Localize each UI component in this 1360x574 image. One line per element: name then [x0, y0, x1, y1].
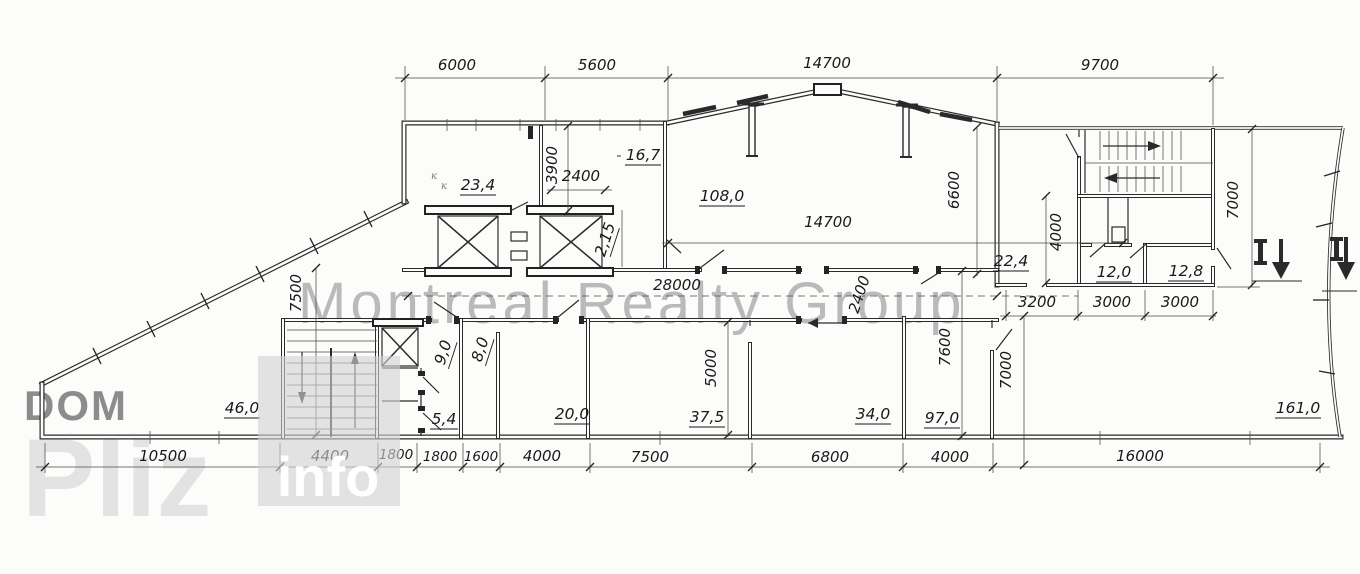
room-area-20-0: 20,0	[554, 405, 590, 424]
dim-text: 9700	[1081, 56, 1119, 74]
dim-bottom-9: 16000	[1116, 447, 1164, 465]
roof-peak-cap	[814, 84, 841, 95]
area-text: 108,0	[700, 187, 745, 205]
dim-top-1: 5600	[578, 56, 616, 74]
room-area-12-0: 12,0	[1096, 263, 1132, 282]
dim-text: 4000	[931, 448, 969, 466]
area-text: 97,0	[925, 409, 960, 427]
area-text: 12,8	[1169, 262, 1204, 280]
dim-top-3: 9700	[1081, 56, 1119, 74]
dim-7000-stair: 7000	[1224, 181, 1242, 219]
pencil-mark: к	[441, 181, 447, 192]
dim-3200: 3200	[1018, 293, 1056, 311]
dim-4000-stair: 4000	[1047, 213, 1065, 251]
room-area-97-0: 97,0	[924, 409, 960, 428]
dim-7000-hall: 7000	[997, 351, 1015, 389]
dim-text: 1600	[464, 449, 498, 465]
room-area-12-8: 12,8	[1168, 262, 1204, 281]
dim-text: 4000	[1047, 213, 1065, 251]
dim-5000: 5000	[702, 349, 720, 387]
area-text: 16,7	[626, 146, 661, 164]
dim-text: 3000	[1161, 293, 1199, 311]
area-text: 46,0	[225, 399, 260, 417]
dim-bottom-3: 1800	[423, 449, 457, 465]
dim-14700-inner: 14700	[804, 213, 852, 231]
dim-text: 16000	[1116, 447, 1164, 465]
dim-text: 7000	[997, 351, 1015, 389]
dim-text: 7500	[631, 448, 669, 466]
dim-text: 6600	[945, 171, 963, 209]
room-area-161-0: 161,0	[1275, 399, 1321, 418]
area-text: 23,4	[461, 176, 496, 194]
dim-top-2: 14700	[803, 54, 851, 72]
dim-2400-shaft: 2400	[562, 167, 600, 185]
area-text: 12,0	[1097, 263, 1132, 281]
area-text: 20,0	[555, 405, 590, 423]
room-area-37-5: 37,5	[689, 408, 725, 427]
dim-bottom-6: 7500	[631, 448, 669, 466]
dim-3900: 3900	[543, 146, 561, 184]
dim-top-0: 6000	[438, 56, 476, 74]
dim-bottom-4: 1600	[464, 449, 498, 465]
dim-6600: 6600	[945, 171, 963, 209]
area-text: 161,0	[1276, 399, 1321, 417]
dim-text: 3900	[543, 146, 561, 184]
area-text: 34,0	[856, 405, 891, 423]
dim-text: 1800	[423, 449, 457, 465]
dim-text: 7500	[287, 274, 305, 312]
wall-stub	[528, 126, 533, 139]
dim-text: 14700	[804, 213, 852, 231]
dim-text: 2400	[562, 167, 600, 185]
dim-3000-a: 3000	[1093, 293, 1131, 311]
dim-text: 3200	[1018, 293, 1056, 311]
area-text: 37,5	[690, 408, 725, 426]
room-area-5-4: 5,4	[430, 410, 458, 429]
dim-bottom-8: 4000	[931, 448, 969, 466]
dim-text: 6000	[438, 56, 476, 74]
pencil-mark: к	[431, 171, 437, 182]
area-text: 5,4	[432, 410, 457, 428]
dim-text: 5600	[578, 56, 616, 74]
dim-bottom-0: 10500	[139, 447, 187, 465]
floor-plan-scan: Montreal Realty Group DOM Pliz	[0, 0, 1360, 574]
floor-plan-drawing: Montreal Realty Group DOM Pliz	[0, 0, 1360, 574]
room-area-23-4: 23,4	[460, 176, 496, 195]
dim-text: 28000	[653, 276, 701, 294]
dim-text: 7000	[1224, 181, 1242, 219]
dim-text: 10500	[139, 447, 187, 465]
dim-7600: 7600	[936, 328, 954, 366]
dim-text: 5000	[702, 349, 720, 387]
dim-text: 14700	[803, 54, 851, 72]
dim-text: 4000	[523, 447, 561, 465]
watermark-info-text: info	[277, 445, 380, 508]
dim-28000: 28000	[653, 276, 701, 294]
area-text: 22,4	[994, 252, 1029, 270]
dim-text: 3000	[1093, 293, 1131, 311]
dim-bottom-5: 4000	[523, 447, 561, 465]
watermark-info-box: info	[258, 356, 400, 508]
room-area-34-0: 34,0	[855, 405, 891, 424]
room-area-22-4: 22,4	[993, 252, 1029, 271]
room-area-46-0: 46,0	[224, 399, 260, 418]
dim-3000-b: 3000	[1161, 293, 1199, 311]
dim-text: 7600	[936, 328, 954, 366]
dim-7500-left: 7500	[287, 274, 305, 312]
room-area-108-0: 108,0	[699, 187, 745, 206]
dim-text: 6800	[811, 448, 849, 466]
dim-bottom-7: 6800	[811, 448, 849, 466]
